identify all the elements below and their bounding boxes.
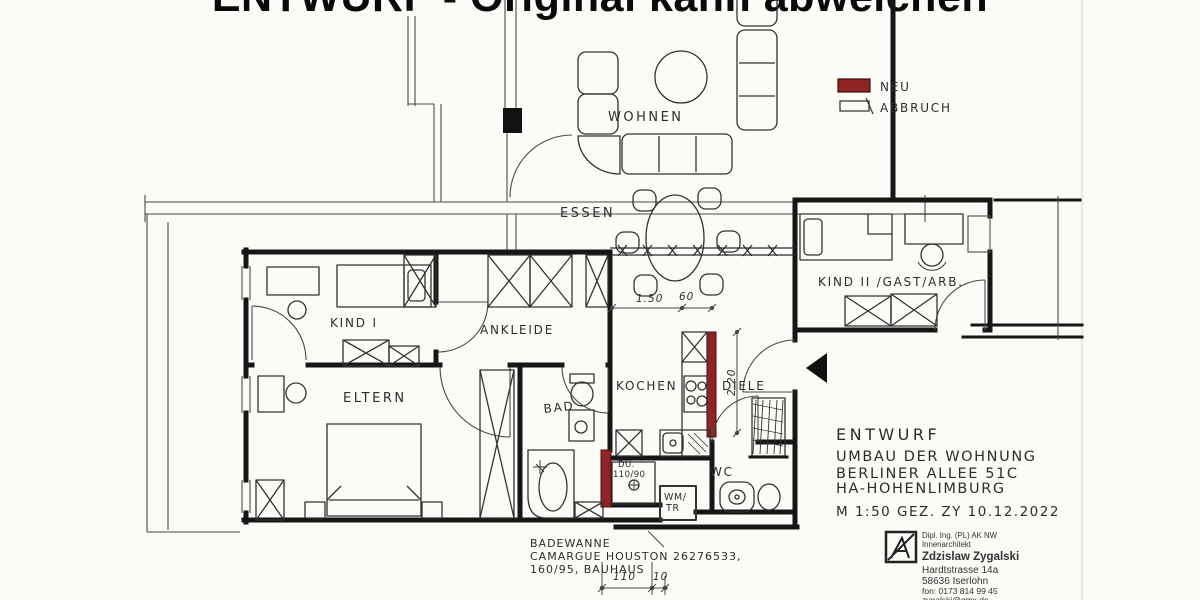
dining-chair	[633, 190, 656, 211]
toilet	[720, 482, 754, 512]
stamp-line3: Hardtstrasse 14a	[922, 565, 999, 576]
stamp-line1: Dipl. Ing. (PL) AK NW	[922, 531, 998, 540]
washer-label-1: WM/	[664, 492, 687, 503]
dim-kitchen-width: 1.50	[636, 293, 663, 305]
dining-set	[616, 188, 740, 296]
door-kind1	[252, 306, 306, 360]
wardrobe	[343, 340, 419, 366]
room-label-wc: WC	[710, 465, 734, 479]
door-eltern	[440, 367, 510, 437]
legend-abbruch-swatch	[840, 101, 869, 111]
washer-label-2: TR	[665, 503, 680, 514]
room-label-wohnen: WOHNEN	[608, 110, 684, 125]
stamp-line6: zygalski@gmx.de	[922, 595, 989, 600]
room-label-eltern: ELTERN	[343, 391, 407, 406]
entrance-arrow-icon	[806, 353, 827, 383]
room-label-kind2: KIND II /GAST/ARB.	[818, 275, 964, 289]
project-line4: HA-HOHENLIMBURG	[836, 481, 1006, 497]
nightstand	[422, 502, 442, 518]
shower-label-1: DU.	[618, 460, 635, 470]
sofa-corner	[578, 136, 620, 174]
kitchen-sink	[660, 430, 710, 456]
sofa-three-seater	[622, 134, 732, 174]
project-title: ENTWURF	[836, 425, 940, 444]
chair	[921, 244, 943, 266]
legend-neu-swatch	[838, 79, 870, 92]
stamp-line2: Innenarchitekt	[922, 540, 972, 549]
legend-neu-label: NEU	[880, 80, 911, 94]
room-label-essen: ESSEN	[560, 206, 615, 221]
round-table	[655, 51, 707, 103]
kind2-furniture	[800, 214, 963, 326]
kitchen-fixtures	[616, 332, 710, 458]
project-line3: BERLINER ALLEE 51C	[836, 466, 1019, 482]
drainer	[688, 433, 708, 454]
architect-stamp: Dipl. Ing. (PL) AK NW Innenarchitekt Zdz…	[886, 531, 1019, 600]
floor-plan-svg: 1.50 60 2.20 110 10 WOHNEN ESSEN KIND I …	[0, 0, 1200, 600]
wc-fixtures	[720, 482, 780, 512]
room-label-diele: DIELE	[722, 379, 766, 393]
sofa-right	[737, 30, 777, 130]
legend-abbruch-label: ABBRUCH	[880, 101, 952, 115]
sparkle	[533, 460, 547, 474]
project-block: ENTWURF UMBAU DER WOHNUNG BERLINER ALLEE…	[836, 425, 1060, 520]
desk	[267, 267, 319, 295]
sink	[569, 410, 594, 441]
double-bed	[327, 424, 421, 516]
new-wall-shower	[601, 450, 611, 507]
project-scale-line: M 1:50 GEZ. ZY 10.12.2022	[836, 504, 1060, 520]
dim-bottom-b: 10	[653, 571, 668, 583]
pillow	[804, 219, 822, 255]
desk	[258, 376, 284, 412]
room-label-ankleide: ANKLEIDE	[480, 323, 554, 337]
toilet	[571, 382, 593, 406]
cooktop	[684, 376, 707, 412]
dim-counter-depth: 60	[679, 291, 694, 303]
note-line1: BADEWANNE	[530, 537, 611, 550]
column	[503, 108, 522, 133]
wc-sink	[758, 484, 780, 510]
wohnen-furniture	[578, 0, 777, 174]
room-label-kind1: KIND I	[330, 316, 378, 330]
shower-label-2: 110/90	[613, 470, 645, 480]
stamp-name: Zdzislaw Zygalski	[922, 551, 1019, 563]
project-line2: UMBAU DER WOHNUNG	[836, 449, 1037, 465]
room-label-bad: BAD	[543, 399, 575, 416]
note-line3: 160/95, BAUHAUS	[530, 563, 645, 576]
chair	[288, 301, 306, 319]
sofa-seat	[578, 52, 618, 94]
door-wohnen	[510, 135, 572, 197]
room-label-kochen: KOCHEN	[616, 379, 677, 393]
nightstand	[305, 502, 325, 518]
desk	[905, 214, 963, 244]
bed	[800, 214, 892, 260]
chair	[286, 383, 306, 403]
note-line2: CAMARGUE HOUSTON 26276533,	[530, 550, 741, 563]
notes-block: BADEWANNE CAMARGUE HOUSTON 26276533, 160…	[530, 537, 741, 576]
bad-fixtures	[528, 374, 603, 518]
blanket-fold	[868, 214, 892, 234]
new-wall-kitchen	[707, 332, 716, 437]
tall-wardrobe	[480, 370, 514, 518]
kind2-window	[968, 216, 990, 252]
